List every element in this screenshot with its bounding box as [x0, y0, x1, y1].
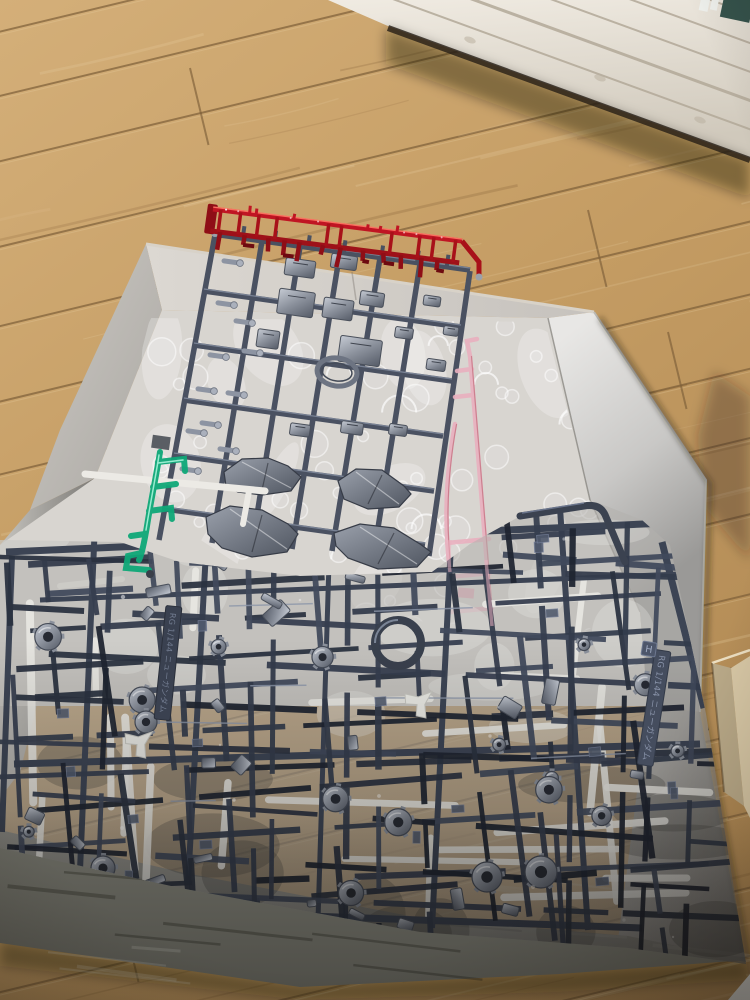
photo-gundam-kit-box: RG 1/144 ニューガンダム RG 1/144 ニューガンダム H — [0, 0, 750, 1000]
photo-stage: RG 1/144 ニューガンダム RG 1/144 ニューガンダム H — [0, 0, 750, 1000]
bottom-shade — [0, 810, 750, 1000]
